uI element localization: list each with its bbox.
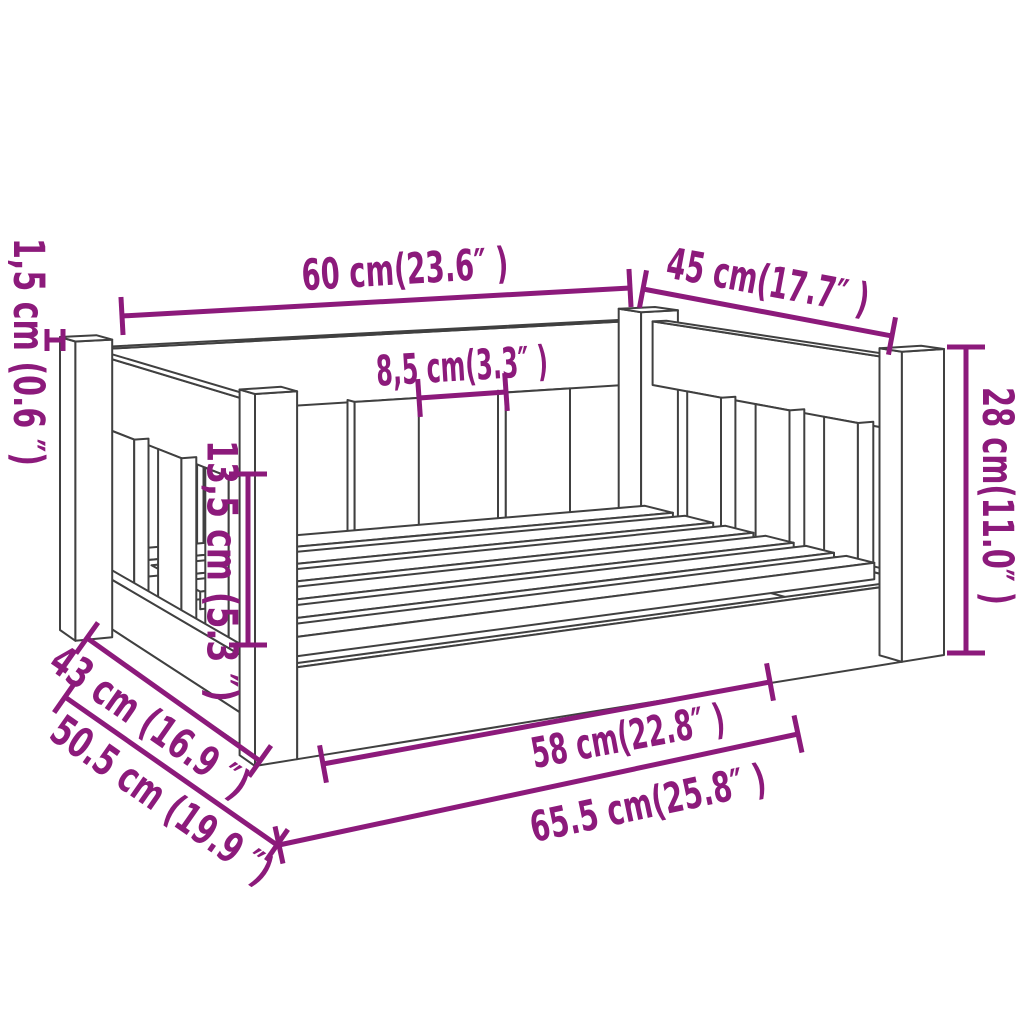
dimension-label-board-thickness: 1,5 cm (0.6 ″)	[3, 238, 53, 466]
left-slat-2	[158, 449, 196, 620]
dimension-label-opening-height: 13,5 cm (5.3 ″)	[198, 440, 247, 702]
right-slat-3	[824, 417, 873, 568]
back-slat-2	[348, 398, 419, 540]
post-front-right	[880, 346, 945, 662]
dimension-label-post-height: 28 cm(11.0″ )	[972, 387, 1022, 605]
left-slat-1	[111, 430, 149, 592]
dimension-board-thickness: 1,5 cm (0.6 ″)	[3, 238, 63, 466]
dimension-end-tick	[629, 269, 631, 307]
dimension-end-tick	[639, 270, 646, 307]
dimension-label-slat-gap: 8,5 cm(3.3″ )	[375, 336, 550, 395]
dimension-end-tick	[121, 297, 123, 335]
right-slat-2	[756, 404, 805, 551]
product-dimension-diagram: 60 cm(23.6″ )45 cm(17.7″ )1,5 cm (0.6 ″)…	[0, 0, 1024, 1024]
right-slat-1	[687, 391, 735, 534]
dimension-label-back-length: 60 cm(23.6″ )	[300, 239, 510, 302]
dimension-back-length: 60 cm(23.6″ )	[121, 239, 631, 335]
post-back-left	[60, 335, 112, 641]
dog-bed-line-drawing: 60 cm(23.6″ )45 cm(17.7″ )1,5 cm (0.6 ″)…	[0, 0, 1024, 1024]
dimension-post-height: 28 cm(11.0″ )	[947, 347, 1022, 653]
